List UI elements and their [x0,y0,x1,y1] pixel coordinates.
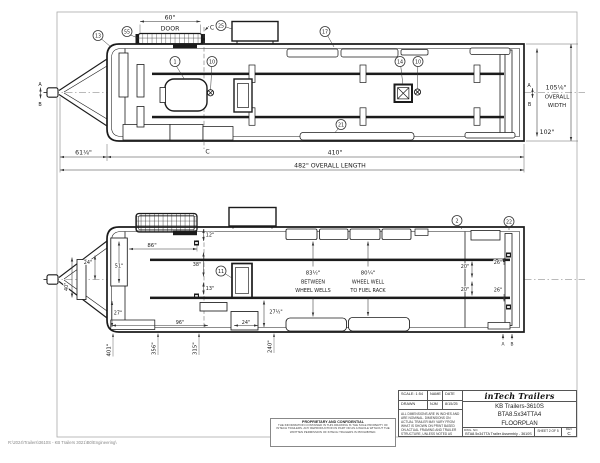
balloon-10a: 10 [209,59,215,65]
rear-section-marks: A B [501,334,513,348]
station-401: 401" [107,344,113,357]
dim-20-top: 20" [461,264,469,270]
drawn-name: NJM [428,401,443,410]
overall-width-dim: 105⅛" [546,85,567,92]
dim-24-floor: 24" [242,320,250,326]
balloon-17: 17 [322,29,328,35]
door-ramp-hatch [139,34,202,45]
equipment-item-1 [160,79,207,111]
dim-26-top: 26" [494,260,502,266]
dim-26-bottom: 26" [494,288,502,294]
balloon-10b: 10 [415,59,421,65]
coupler [47,88,58,97]
dim-20-bottom: 20" [461,287,469,293]
drawing-title-cell: KB Trailers-3610S BTA8.5x34TTA4 FLOORPLA… [463,402,576,428]
side-door-group: 60" DOOR [136,15,206,49]
fuel-rack [232,264,252,298]
fuelrack-dim: 80¼" [361,271,376,277]
overall-width-word1: OVERALL [545,95,569,101]
tongue-40-dim: 40" [64,283,70,291]
balloon-1: 1 [173,59,176,65]
balloon-22: 22 [506,219,512,225]
proprietary-body: THE INFORMATION CONTAINED IN THIS DRAWIN… [274,424,392,434]
door-width-dim: 60" [165,15,176,22]
box-length-dim: 410" [328,150,343,157]
product-line1: KB Trailers-3610S [463,403,576,411]
drawn-date: 8/15/25 [443,401,462,410]
station-240: 240" [268,340,274,353]
station-dimensions: 401" 356" 315" 240" [107,334,275,357]
drawing-sheet: A B 60" DOOR C C [0,0,600,463]
wheelwell-line1: BETWEEN [301,280,325,286]
sheet-number: SHEET 2 OF 5 [535,428,562,437]
datum-label-b: B [38,102,42,108]
tolerance-notes: ALL DIMENSIONS ARE IN INCHES AND ARE NOM… [399,410,462,436]
station-315: 315" [193,342,199,355]
title-block-left: SCALE: 1:54 NAME DATE DRAWN NJM 8/15/25 … [399,391,463,436]
rear-ramp-door [505,234,512,326]
door-hinge-left [136,34,140,44]
cabinet-51-dim: 51" [115,264,123,270]
rear-ramp-door [505,50,512,136]
wall-box [415,229,428,236]
scale-cell: SCALE: 1:54 [399,391,428,400]
dim-27-half: 27½" [269,309,282,316]
door-label: DOOR [161,26,181,33]
name-header: NAME [428,391,443,400]
dwg-number-cell: DWG. NO. BTA8.5x34TTA Trailer Assembly -… [463,428,535,437]
dim-13: 13" [206,286,214,292]
floor-vent-box [395,85,413,103]
balloon-13: 13 [95,33,101,39]
tongue-length-dim: 61⅛" [75,150,92,157]
section-label-top: C [210,25,214,32]
balloon-25: 25 [218,23,224,29]
balloon-21: 21 [338,122,344,128]
balloon-14: 14 [397,59,403,65]
dim-86: 86" [147,243,156,249]
file-path-text: R:\2024\Trailers\3610S - KB Trailers 302… [8,440,117,445]
roof-box [232,22,278,45]
date-header: DATE [443,391,462,400]
coupler [47,275,58,284]
dwg-title: BTA8.5x34TTA Trailer Assembly - 3610S [463,432,534,436]
title-block: SCALE: 1:54 NAME DATE DRAWN NJM 8/15/25 … [398,390,577,437]
balloon-2: 2 [455,218,458,224]
rev-value: C [562,431,576,436]
roof-vent [136,214,197,236]
fuelrack-line1: WHEEL WELL [352,280,385,286]
roof-box [229,208,276,229]
company-logo: inTech Trailers [463,391,576,402]
wheelwell-dim: 83½" [306,270,321,277]
balloon-55: 55 [124,29,130,35]
door-step [173,44,197,48]
rear-mark-a: A [501,342,504,348]
wheelwell-line2: WHEEL WELLS [295,288,330,294]
door-hinge-right [202,34,206,44]
section-label-bottom: C [205,149,209,156]
bottom-view: 24" 40" 51" 86" 12" 38" 13" [44,208,586,357]
datum-label-a: A [38,82,42,88]
rear-mark-b: B [510,342,513,348]
overall-length-dim: 482" OVERALL LENGTH [294,163,366,170]
tongue-24-dim: 24" [84,260,92,266]
balloon-11: 11 [218,269,224,275]
product-line3: FLOORPLAN [463,420,576,428]
interior-width-dim: 102" [540,129,555,136]
proprietary-block: PROPRIETARY AND CONFIDENTIAL THE INFORMA… [270,418,396,447]
product-line2: BTA8.5x34TTA4 [463,411,576,419]
title-block-right: inTech Trailers KB Trailers-3610S BTA8.5… [463,391,576,436]
overall-width-word2: WIDTH [548,103,566,109]
rev-cell: REV C [562,428,576,437]
dim-27: 27" [114,311,122,317]
datum-right-b: B [528,102,532,108]
rear-step [488,323,510,330]
floor-anchor-symbol-left [207,90,213,96]
station-356: 356" [152,342,158,355]
floor-anchor-symbol-right [414,89,420,95]
top-view: A B 60" DOOR C C [38,15,585,173]
drawn-label: DRAWN [399,401,428,410]
dwg-row: DWG. NO. BTA8.5x34TTA Trailer Assembly -… [463,428,576,437]
dim-12: 12" [206,233,214,239]
mid-cabinet [234,79,252,112]
fuelrack-line2: TO FUEL RACK [349,288,386,294]
dim-96: 96" [176,320,184,326]
dim-38: 38" [193,262,201,268]
datum-right-a: A [527,83,531,89]
rear-shelf [471,231,500,241]
